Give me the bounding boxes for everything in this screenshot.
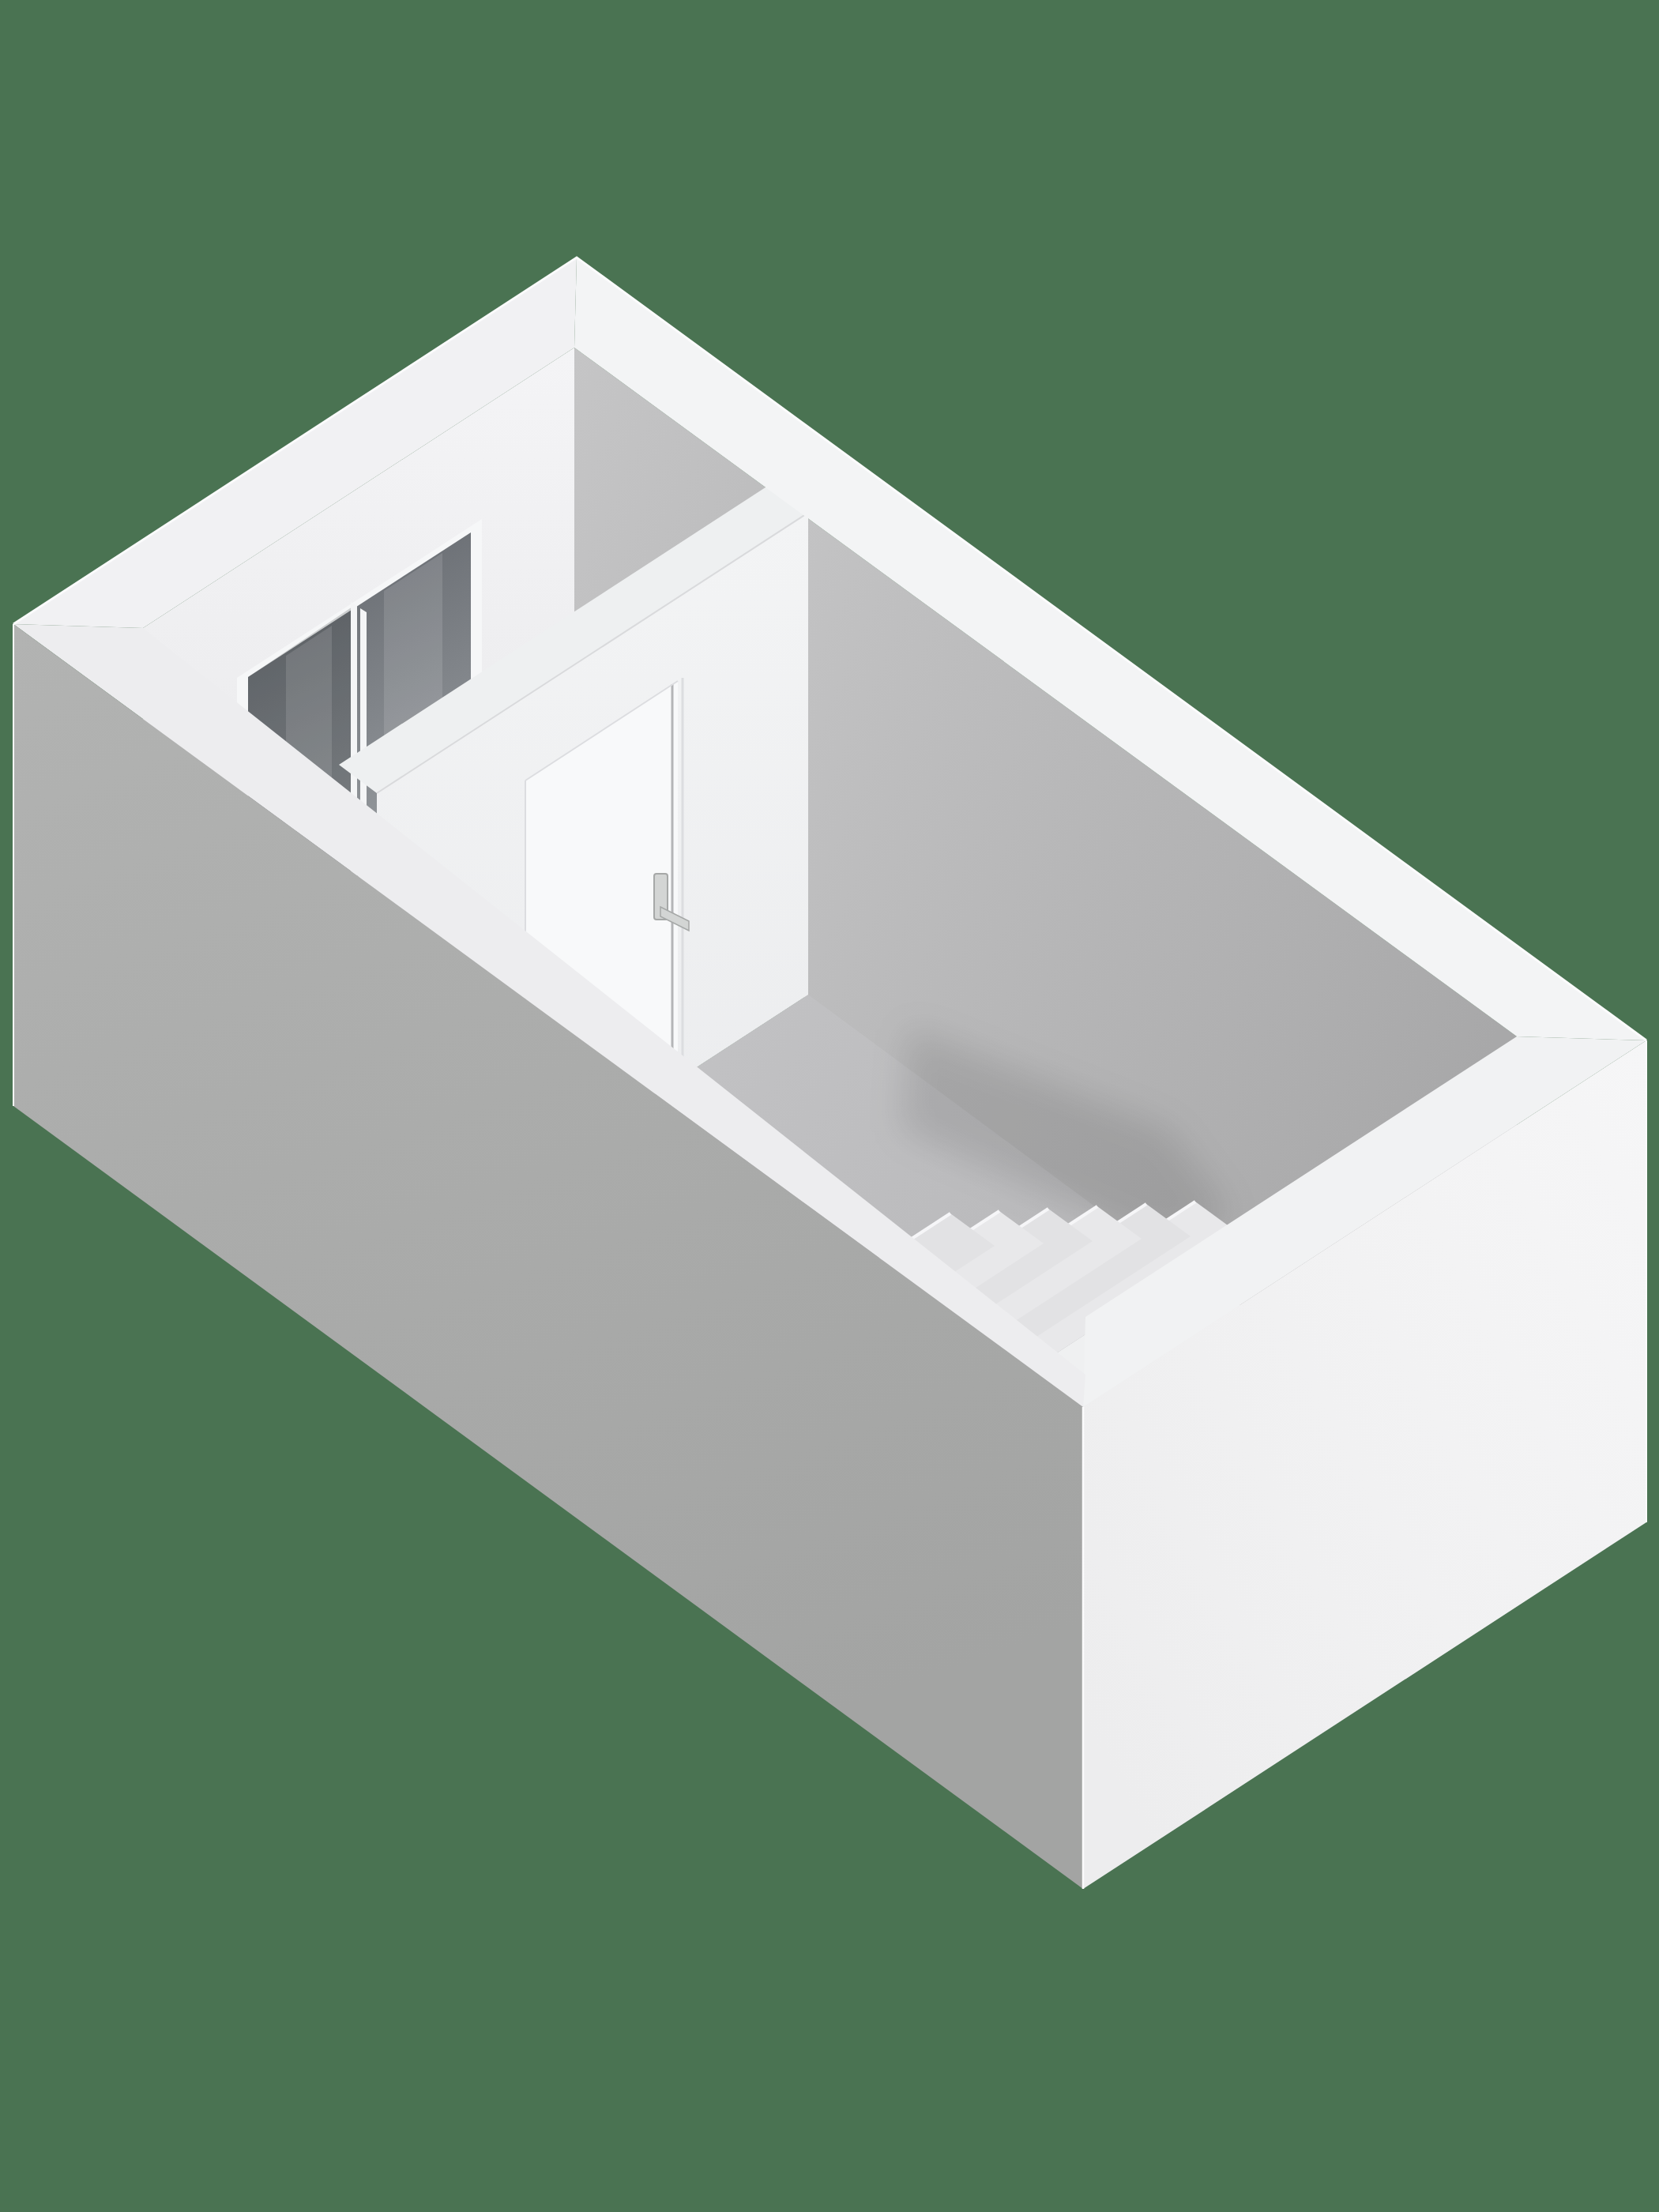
floorplan-3d-svg bbox=[0, 0, 1659, 2212]
floorplan-3d-stage bbox=[0, 0, 1659, 2212]
